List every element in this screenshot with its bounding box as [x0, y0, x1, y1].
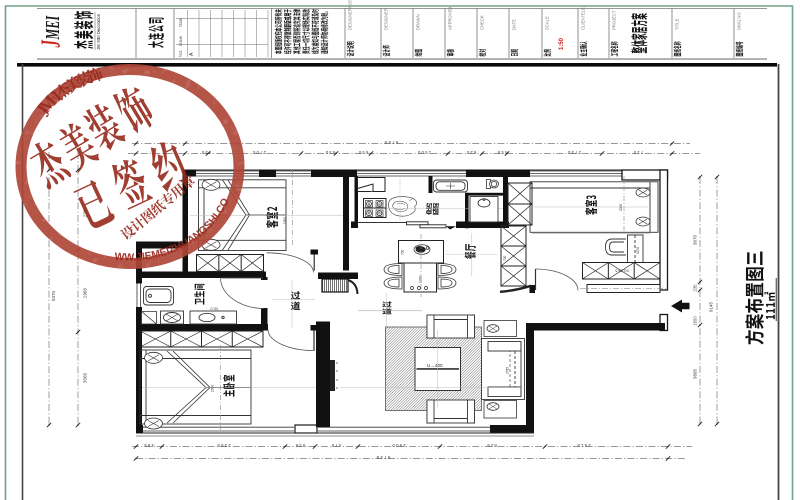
svg-text:NO. Issue Date: NO. Issue Date [178, 17, 183, 57]
svg-text:3670: 3670 [693, 234, 698, 245]
svg-text:640: 640 [358, 150, 369, 155]
svg-text:JIE MEI Decoration: JIE MEI Decoration [96, 13, 101, 50]
svg-text:475: 475 [331, 443, 342, 448]
svg-text:620: 620 [466, 150, 477, 155]
svg-text:DESIGNERNOST: DESIGNERNOST [348, 0, 353, 30]
svg-text:1070: 1070 [636, 247, 640, 254]
svg-text:2000: 2000 [619, 204, 623, 211]
svg-text:9145: 9145 [709, 301, 714, 312]
svg-text:465: 465 [143, 443, 154, 448]
svg-text:1500: 1500 [283, 217, 287, 224]
svg-text:700: 700 [503, 255, 507, 261]
svg-text:2355: 2355 [216, 443, 230, 448]
svg-text:COB1: COB1 [210, 307, 219, 311]
svg-text:J: J [36, 39, 66, 48]
svg-text:DRAWN: DRAWN [416, 14, 421, 30]
svg-text:1400: 1400 [417, 150, 431, 155]
svg-text:DATE: DATE [512, 19, 517, 30]
svg-text:935: 935 [295, 443, 306, 448]
svg-text:2785: 2785 [506, 367, 510, 374]
svg-text:2600: 2600 [391, 443, 405, 448]
svg-text:9745: 9745 [383, 139, 398, 145]
svg-text:2515: 2515 [576, 443, 590, 448]
svg-text:1500: 1500 [211, 385, 215, 392]
svg-text:420: 420 [201, 150, 212, 155]
svg-text:2965: 2965 [83, 287, 88, 298]
svg-text:630: 630 [325, 150, 336, 155]
svg-text:DESIGNER: DESIGNER [384, 8, 389, 30]
svg-text:9370: 9370 [51, 290, 56, 301]
svg-text:SCALE: SCALE [545, 16, 550, 30]
svg-text:PROJECT: PROJECT [612, 10, 617, 30]
svg-text:XG B4.5: XG B4.5 [615, 269, 629, 273]
svg-text:1700: 1700 [252, 150, 266, 155]
svg-text:1730: 1730 [567, 150, 581, 155]
svg-text:445: 445 [497, 150, 508, 155]
svg-text:TITLE: TITLE [675, 18, 680, 30]
svg-text:235: 235 [693, 284, 698, 292]
svg-text:3565: 3565 [83, 372, 88, 383]
svg-text:700: 700 [401, 249, 405, 255]
svg-text:U→400: U→400 [427, 363, 443, 368]
svg-text:1200: 1200 [419, 276, 423, 283]
svg-text:625: 625 [486, 443, 497, 448]
svg-text:1650: 1650 [693, 316, 698, 326]
svg-text:1:50: 1:50 [559, 37, 565, 50]
svg-text:MEI: MEI [41, 15, 64, 40]
svg-text:CLIENTELE: CLIENTELE [581, 7, 586, 30]
svg-text:3685: 3685 [693, 368, 698, 379]
svg-text:APPROVED: APPROVED [448, 7, 453, 30]
svg-text:CHECK: CHECK [480, 15, 485, 30]
svg-text:710: 710 [633, 150, 644, 155]
svg-text:9745: 9745 [375, 454, 390, 460]
svg-text:DWG.NO: DWG.NO [737, 12, 742, 30]
